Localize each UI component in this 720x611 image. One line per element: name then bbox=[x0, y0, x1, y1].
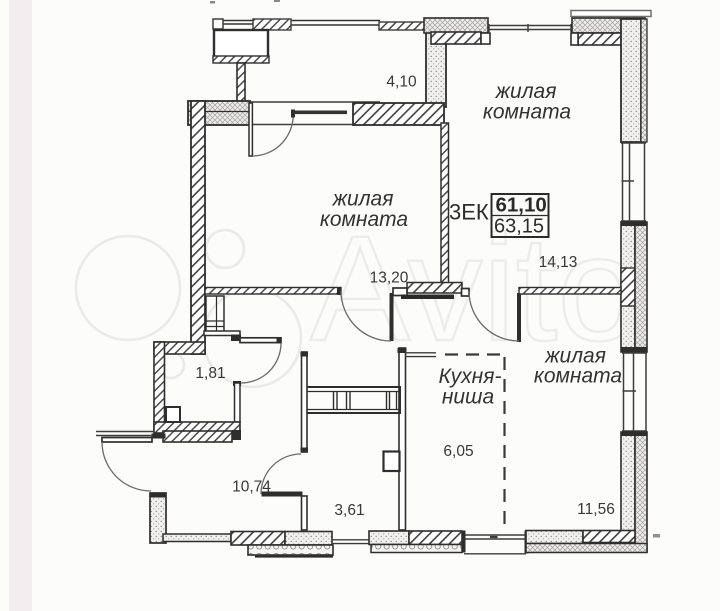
svg-text:10,74: 10,74 bbox=[232, 479, 271, 496]
svg-text:ниша: ниша bbox=[442, 386, 494, 409]
svg-text:комната: комната bbox=[483, 101, 571, 124]
svg-text:комната: комната bbox=[320, 208, 408, 231]
svg-text:6,05: 6,05 bbox=[443, 443, 473, 460]
svg-text:61,10: 61,10 bbox=[496, 194, 547, 217]
svg-text:3,61: 3,61 bbox=[334, 502, 364, 519]
svg-text:1,81: 1,81 bbox=[195, 365, 225, 382]
svg-text:13,20: 13,20 bbox=[370, 270, 409, 287]
svg-text:комната: комната bbox=[534, 365, 622, 388]
svg-text:11,56: 11,56 bbox=[577, 501, 615, 518]
svg-text:14,13: 14,13 bbox=[539, 254, 578, 271]
svg-text:3ЕК: 3ЕК bbox=[449, 200, 489, 225]
svg-text:63,15: 63,15 bbox=[494, 216, 544, 238]
svg-text:4,10: 4,10 bbox=[386, 74, 417, 91]
